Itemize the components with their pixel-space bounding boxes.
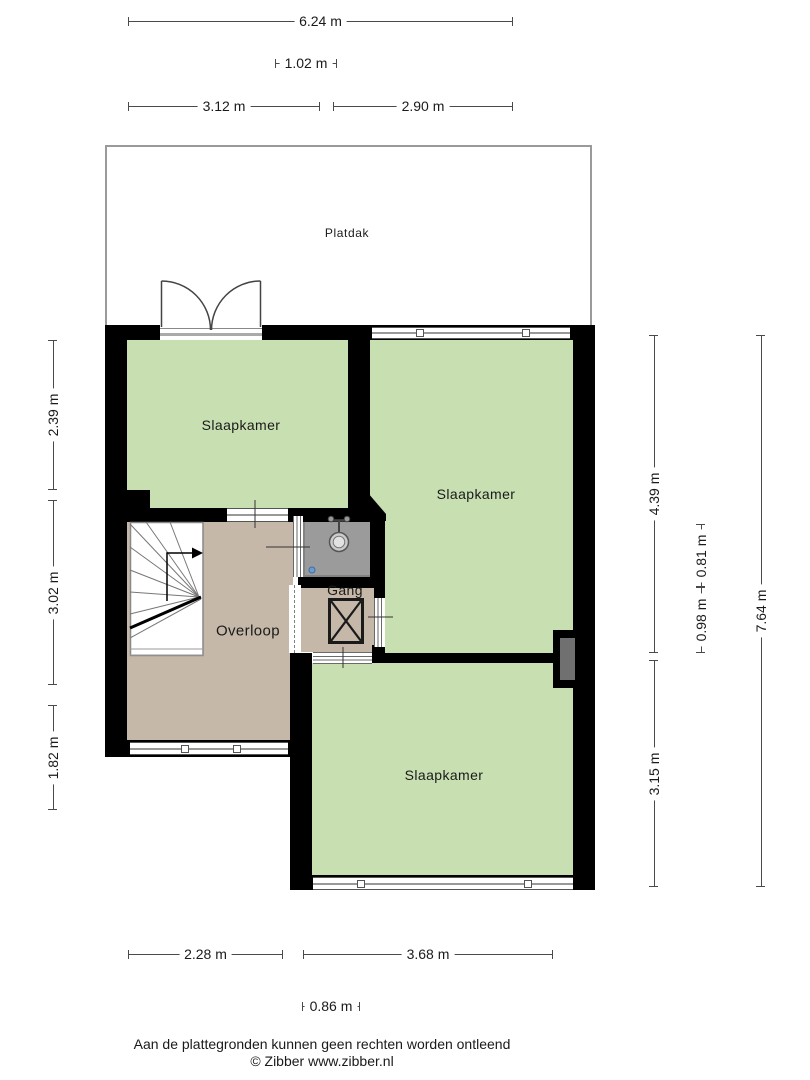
footer-disclaimer: Aan de plattegronden kunnen geen rechten…: [134, 1036, 511, 1053]
floorplan-drawing: Platdak Slaapkamer Slaapkamer Slaapkamer…: [0, 0, 810, 1080]
chimney-duct: [560, 638, 575, 680]
interior-window: [227, 508, 288, 522]
wall-mid-vertical: [348, 325, 370, 517]
door-slaapkamer-bottom: [313, 652, 372, 664]
label-slaapkamer-topleft: Slaapkamer: [202, 417, 281, 433]
double-door-opening: [160, 325, 262, 340]
wall-mid-horizontal: [372, 653, 573, 663]
room-toilet: [303, 518, 373, 577]
label-gang: Gang: [327, 582, 363, 598]
chimney-block: [553, 630, 578, 688]
label-overloop: Overloop: [216, 623, 280, 640]
door-slaapkamer-right: [374, 598, 385, 647]
window-bottom: [313, 877, 573, 890]
window-overloop: [130, 742, 288, 755]
footer: Aan de plattegronden kunnen geen rechten…: [134, 1036, 511, 1070]
floorplan-page: 6.24 m 1.02 m 3.12 m 2.90 m 2.39 m 3.02 …: [0, 0, 810, 1080]
footer-credit: © Zibber www.zibber.nl: [134, 1053, 511, 1070]
wall-toilet-right: [370, 515, 385, 577]
window-top: [372, 327, 570, 339]
label-slaapkamer-bottom: Slaapkamer: [405, 767, 484, 783]
label-slaapkamer-right: Slaapkamer: [437, 486, 516, 502]
wall-right: [573, 325, 595, 890]
opening-overloop-gang: [289, 585, 301, 653]
label-platdak: Platdak: [325, 226, 369, 240]
wall-notch: [127, 490, 150, 510]
wall-left: [105, 325, 127, 757]
door-toilet: [293, 516, 303, 577]
wall-bottomleft-vertical: [290, 653, 312, 890]
